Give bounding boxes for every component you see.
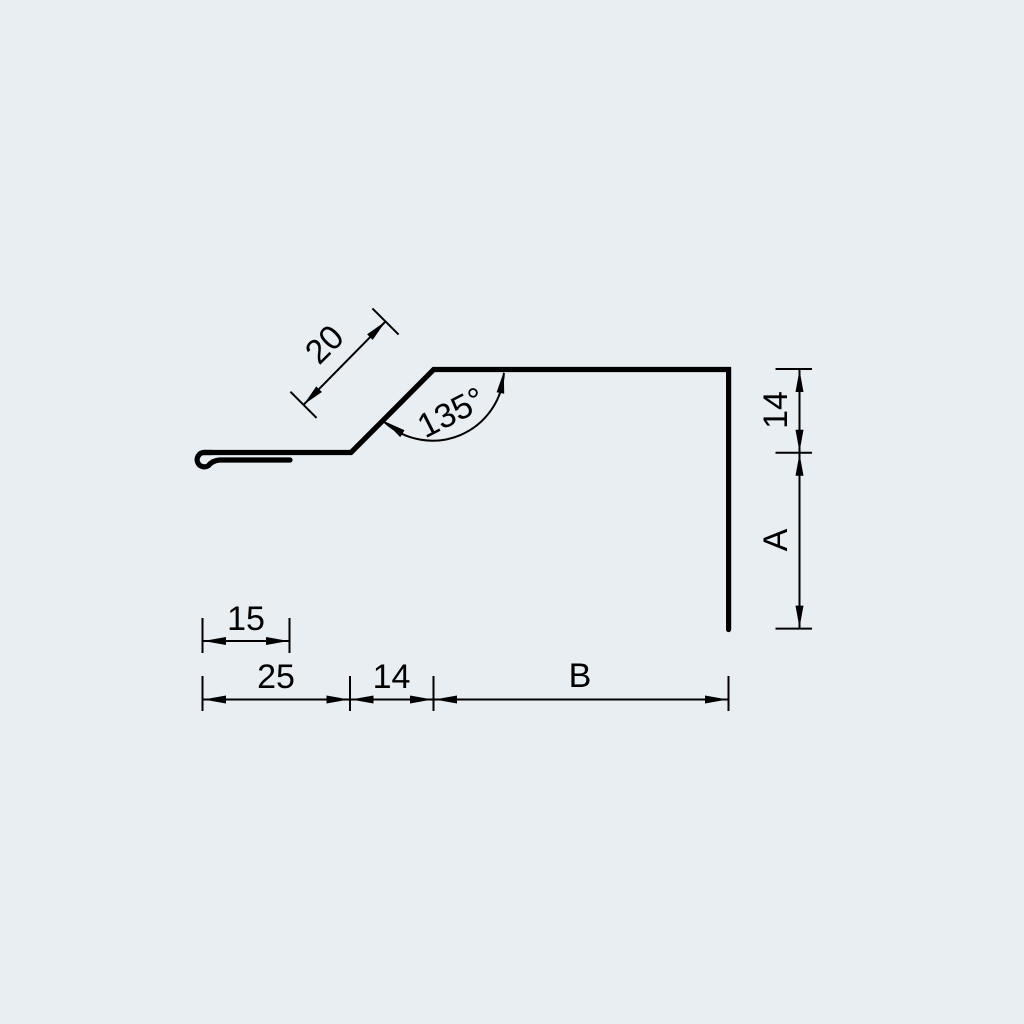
svg-text:14: 14 [757,391,795,429]
svg-text:14: 14 [373,658,411,696]
svg-text:25: 25 [257,658,295,696]
svg-text:B: B [569,657,592,695]
svg-text:A: A [757,528,795,551]
svg-text:15: 15 [227,600,265,638]
